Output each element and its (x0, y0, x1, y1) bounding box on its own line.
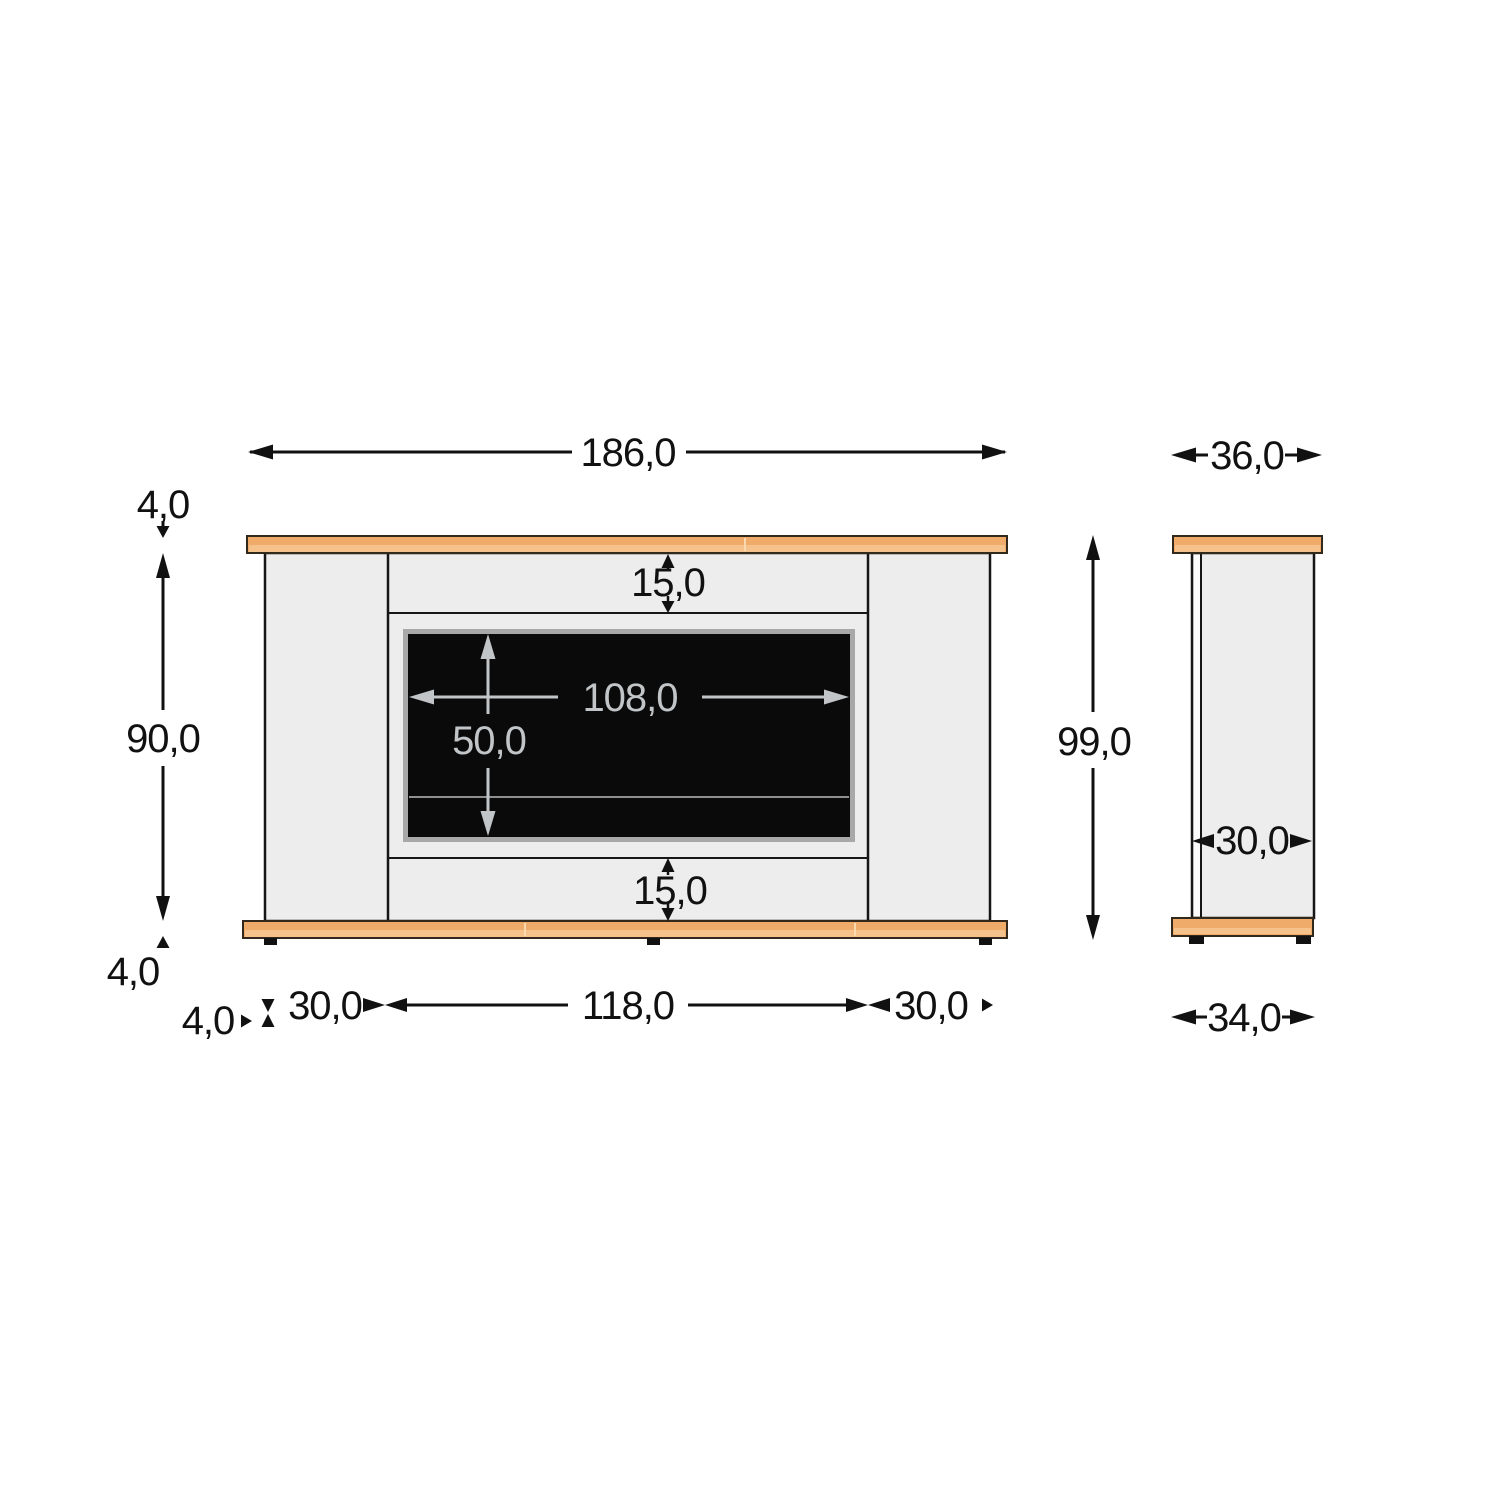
front-bottom-board-thickness-label: 4,0 (107, 950, 160, 994)
front-bottom-board-highlight (245, 930, 1005, 937)
arrowhead-left-icon (1171, 1010, 1196, 1025)
side-foot-right (1296, 936, 1311, 944)
extent-bowtie-right-icon (385, 998, 407, 1012)
side-body-depth-label: 30,0 (1215, 819, 1289, 863)
extent-bowtie-left-icon (363, 998, 385, 1012)
arrowhead-right-icon (982, 999, 993, 1012)
arrowhead-down-icon (156, 896, 170, 921)
extent-marker-up-icon (262, 1014, 275, 1027)
side-view (1172, 536, 1322, 944)
front-view (243, 536, 1007, 945)
front-top-board-highlight (249, 545, 1005, 552)
front-overall-width-label: 186,0 (580, 431, 675, 475)
front-base-overhang-label: 4,0 (182, 999, 235, 1043)
arrowhead-up-icon (156, 553, 170, 578)
front-center-width-label: 118,0 (582, 984, 674, 1028)
side-foot-left (1189, 936, 1204, 944)
extent-marker-down-icon (262, 999, 275, 1012)
front-foot-center (647, 938, 660, 945)
side-body-panel (1192, 553, 1314, 918)
arrowhead-left-icon (248, 445, 273, 460)
side-overall-height-label: 99,0 (1057, 720, 1131, 764)
front-foot-left (264, 938, 277, 945)
arrowhead-right-icon (1290, 1010, 1315, 1025)
front-right-pillar-width-label: 30,0 (894, 984, 968, 1028)
extent-bowtie-left-icon (846, 998, 868, 1012)
front-top-board-thickness-label: 4,0 (137, 483, 190, 527)
side-bottom-board-highlight (1174, 928, 1311, 934)
front-foot-right (979, 938, 992, 945)
front-left-pillar-width-label: 30,0 (288, 984, 362, 1028)
arrowhead-down-icon (1086, 915, 1100, 940)
firebox-height-label: 50,0 (452, 719, 526, 763)
firebox-width-label: 108,0 (582, 676, 677, 720)
front-bottom-reveal-label: 15,0 (633, 869, 707, 913)
arrowhead-up-icon (157, 936, 170, 948)
side-top-board-highlight (1175, 545, 1320, 552)
arrowhead-up-icon (1086, 535, 1100, 560)
arrowhead-right-icon (1297, 448, 1322, 463)
front-top-reveal-label: 15,0 (631, 561, 705, 605)
arrowhead-left-icon (1171, 448, 1196, 463)
arrowhead-down-icon (157, 526, 170, 538)
front-body-height-label: 90,0 (126, 717, 200, 761)
technical-drawing-canvas: 186,0 4,0 90,0 4,0 15,0 15,0 108,0 50,0 … (0, 0, 1500, 1500)
extent-bowtie-right-icon (868, 998, 890, 1012)
arrowhead-right-icon (982, 445, 1007, 460)
side-base-depth-label: 34,0 (1207, 996, 1281, 1040)
side-top-depth-label: 36,0 (1210, 434, 1284, 478)
dim-front-bottom-board-thickness (157, 936, 170, 948)
arrowhead-right-icon (241, 1015, 252, 1028)
side-back-strip (1194, 555, 1200, 916)
fireplace-dimension-drawing: 186,0 4,0 90,0 4,0 15,0 15,0 108,0 50,0 … (0, 0, 1500, 1500)
